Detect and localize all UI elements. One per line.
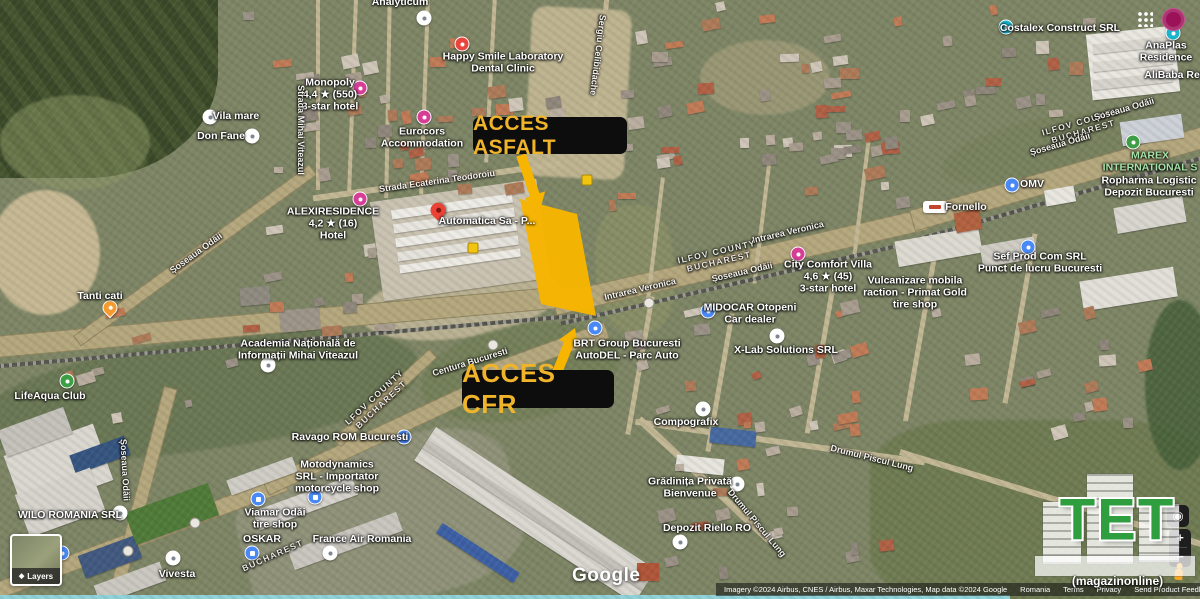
layers-label: Layers	[27, 572, 53, 581]
google-logo: Google	[572, 565, 640, 587]
lifeaqua-club-pin[interactable]	[60, 374, 75, 389]
xlab-solutions-pin[interactable]	[770, 329, 785, 344]
alexiresidence-pin[interactable]	[353, 192, 368, 207]
map-label[interactable]: Vulcanizare mobilaraction - Primat Goldt…	[863, 275, 967, 310]
map-label[interactable]: OMV	[1020, 179, 1044, 191]
map-label[interactable]: Ravago ROM Bucuresti	[292, 432, 409, 444]
map-label[interactable]: ALEXIRESIDENCE4,2 ★ (16)Hotel	[287, 206, 379, 241]
fornello-pin[interactable]	[923, 201, 947, 213]
map-label[interactable]: WILO ROMANIA SRL	[18, 510, 122, 522]
vivesta-pin[interactable]	[166, 551, 181, 566]
viamar-odai-pin[interactable]	[251, 492, 266, 507]
map-label[interactable]: Depozit Riello RO	[663, 523, 751, 535]
map-label[interactable]: Tanti cati	[77, 291, 122, 303]
marex-pin[interactable]	[1126, 135, 1141, 150]
map-label[interactable]: AnaPlasResidence	[1140, 40, 1193, 64]
layers-control[interactable]: ◆ Layers	[10, 534, 62, 586]
map-label[interactable]: Ropharma LogisticDepozit Bucuresti	[1101, 175, 1196, 199]
happy-smile-pin[interactable]	[455, 37, 470, 52]
route-shield-icon	[644, 298, 655, 309]
route-shield-icon	[123, 546, 134, 557]
acces-cfr-callout: ACCES CFR	[462, 370, 614, 408]
map-label[interactable]: Don Fane	[197, 131, 245, 143]
eurocors-pin[interactable]	[417, 110, 432, 125]
map-label[interactable]: Fornello	[945, 202, 986, 214]
map-canvas[interactable]: AnalyticumVila mareDon FaneMonopoly4,4 ★…	[0, 0, 1200, 599]
tet-watermark: TET (magazinonline)	[1035, 468, 1200, 586]
watermark-logo-text: TET	[1060, 486, 1176, 553]
depozit-riello-pin[interactable]	[673, 535, 688, 550]
map-label[interactable]: Compografix	[654, 417, 719, 429]
map-label: Strada Mihai Viteazul	[296, 85, 306, 175]
account-avatar[interactable]	[1162, 8, 1185, 31]
map-label[interactable]: Monopoly4,4 ★ (550)3-star hotel	[302, 77, 359, 112]
route-shield-icon	[190, 518, 201, 529]
map-label[interactable]: Sef Prod Com SRLPunct de lucru Bucuresti	[978, 251, 1102, 275]
layers-icon: ◆	[19, 573, 24, 580]
map-label[interactable]: France Air Romania	[313, 534, 412, 546]
map-label[interactable]: Viamar Odăitire shop	[244, 507, 305, 531]
map-label[interactable]: AliBaba Res	[1144, 70, 1200, 82]
map-label[interactable]: MIDOCAR OtopeniCar dealer	[704, 302, 797, 326]
map-label[interactable]: Grădinița PrivatăBienvenue	[648, 476, 732, 500]
watermark-subtext: (magazinonline)	[1035, 574, 1200, 588]
france-air-pin[interactable]	[323, 546, 338, 561]
map-label[interactable]: Analyticum	[372, 0, 429, 9]
route-shield-icon	[468, 243, 479, 254]
map-label[interactable]: MAREXINTERNATIONAL S	[1103, 150, 1198, 174]
map-label[interactable]: MotodynamicsSRL - Importatormotorcycle s…	[295, 459, 379, 494]
apps-grid-icon[interactable]	[1136, 10, 1153, 27]
map-label[interactable]: LifeAqua Club	[14, 391, 85, 403]
map-label[interactable]: City Comfort Villa4,6 ★ (45)3-star hotel	[784, 259, 872, 294]
don-fane-pin[interactable]	[245, 129, 260, 144]
map-label[interactable]: Vila mare	[213, 111, 260, 123]
map-label[interactable]: OSKAR	[243, 534, 281, 546]
map-label[interactable]: Vivesta	[159, 569, 196, 581]
map-label[interactable]: Happy Smile LaboratoryDental Clinic	[443, 51, 564, 75]
acces-asfalt-callout: ACCES ASFALT	[473, 117, 627, 154]
analyticum-pin[interactable]	[417, 11, 432, 26]
map-label[interactable]: X-Lab Solutions SRL	[734, 345, 838, 357]
map-label[interactable]: EurocorsAccommodation	[381, 126, 463, 150]
annotation-overlay	[0, 0, 1200, 599]
omv-pin[interactable]	[1005, 178, 1020, 193]
imagery-attribution: Imagery ©2024 Airbus, CNES / Airbus, Max…	[724, 585, 1007, 594]
route-shield-icon	[582, 175, 593, 186]
map-label[interactable]: Academia Națională deInformații Mihai Vi…	[238, 338, 358, 362]
map-label[interactable]: Automatica Sa - P...	[439, 216, 536, 228]
brt-group-pin[interactable]	[588, 321, 603, 336]
compografix-pin[interactable]	[696, 402, 711, 417]
map-label[interactable]: Costalex Construct SRL	[1000, 23, 1120, 35]
watermark-building	[1035, 556, 1195, 576]
